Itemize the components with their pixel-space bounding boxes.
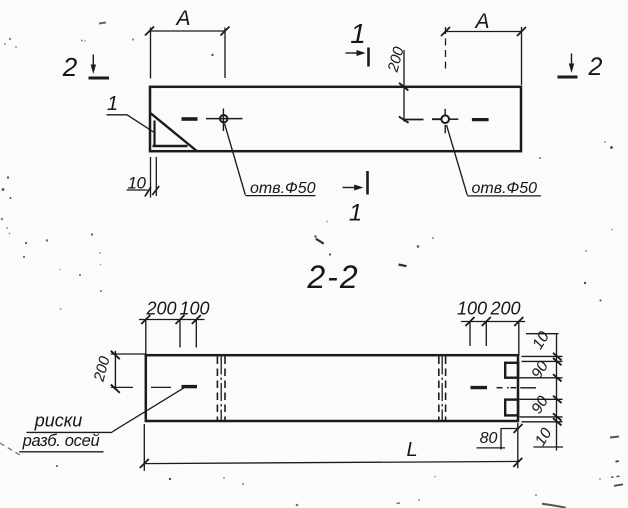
svg-text:2: 2: [62, 52, 78, 82]
svg-text:A: A: [174, 7, 190, 30]
svg-text:2-2: 2-2: [306, 259, 359, 295]
svg-text:отв.Ф50: отв.Ф50: [250, 180, 316, 197]
svg-text:1: 1: [350, 18, 366, 49]
svg-text:100: 100: [457, 299, 487, 319]
svg-text:200: 200: [489, 299, 520, 319]
svg-text:80: 80: [480, 430, 498, 447]
svg-text:1: 1: [107, 93, 118, 115]
svg-text:A: A: [473, 10, 489, 33]
svg-text:отв.Ф50: отв.Ф50: [472, 180, 538, 197]
svg-text:L: L: [406, 439, 417, 461]
svg-text:риски: риски: [34, 411, 83, 431]
svg-text:1: 1: [349, 200, 362, 227]
svg-text:2: 2: [588, 53, 603, 81]
svg-text:разб. осей: разб. осей: [22, 432, 100, 450]
